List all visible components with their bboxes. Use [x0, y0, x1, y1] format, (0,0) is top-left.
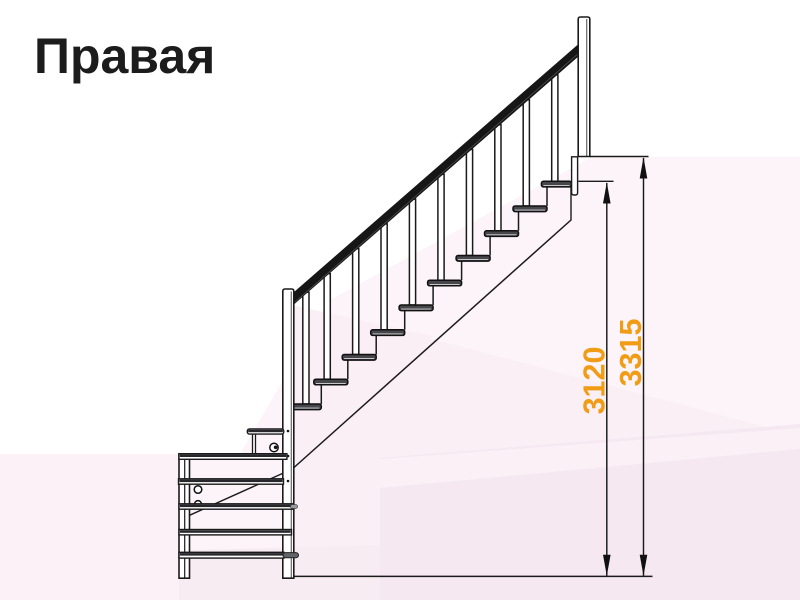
svg-text:3315: 3315: [614, 319, 648, 387]
svg-text:3120: 3120: [578, 347, 612, 415]
svg-text:Правая: Правая: [34, 28, 215, 84]
